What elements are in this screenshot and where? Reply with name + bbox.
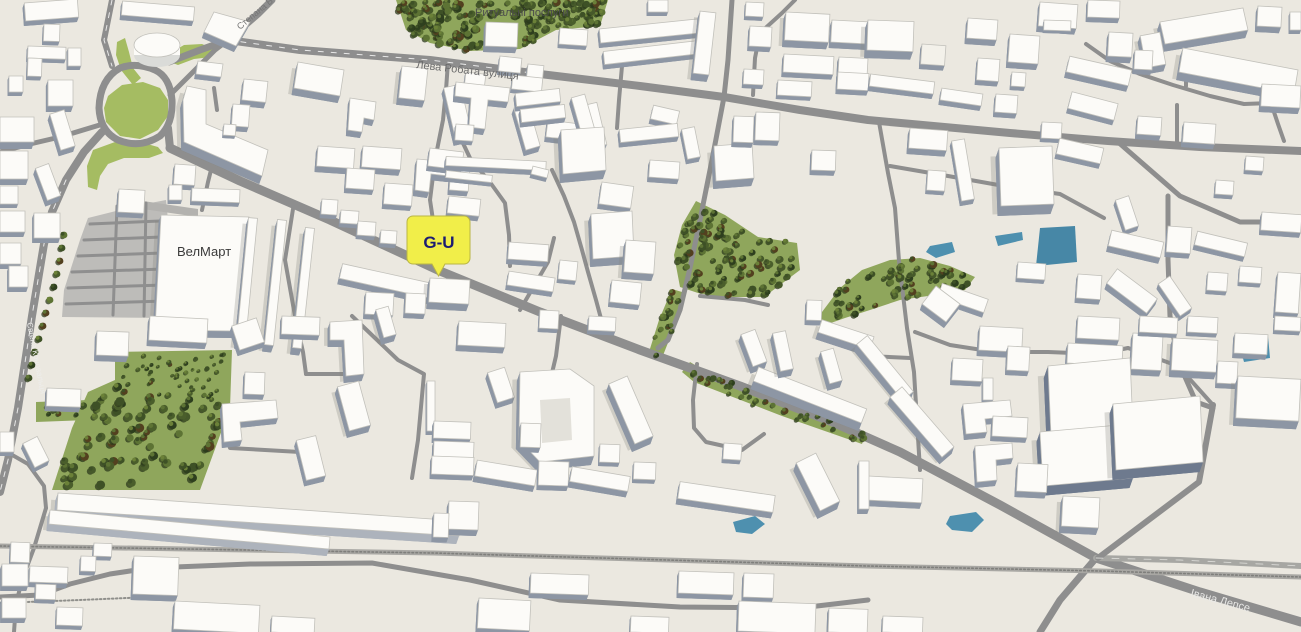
svg-text:ВелМарт: ВелМарт [177,244,231,259]
svg-text:Ритуальні послуги: Ритуальні послуги [475,7,569,19]
svg-text:G-U: G-U [423,233,454,252]
